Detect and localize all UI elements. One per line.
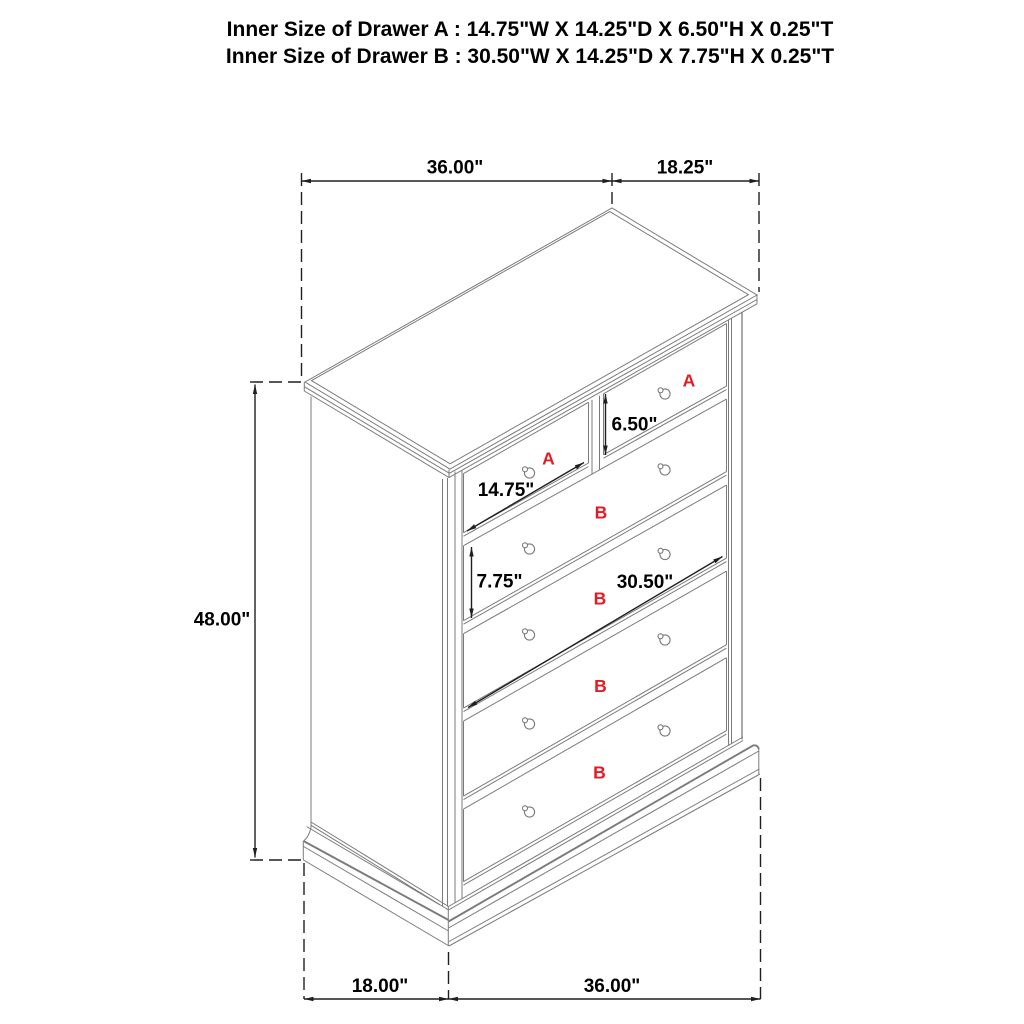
svg-text:B: B bbox=[594, 588, 607, 608]
svg-text:36.00": 36.00" bbox=[584, 976, 641, 997]
svg-text:18.25": 18.25" bbox=[657, 158, 714, 179]
svg-text:18.00": 18.00" bbox=[352, 976, 409, 997]
svg-text:14.75": 14.75" bbox=[478, 480, 535, 501]
svg-text:B: B bbox=[595, 502, 608, 522]
svg-text:B: B bbox=[593, 762, 606, 782]
svg-text:6.50": 6.50" bbox=[612, 414, 658, 435]
svg-text:48.00": 48.00" bbox=[194, 610, 251, 631]
svg-text:7.75": 7.75" bbox=[477, 572, 523, 593]
svg-text:A: A bbox=[683, 371, 696, 391]
svg-text:30.50": 30.50" bbox=[617, 572, 674, 593]
svg-text:36.00": 36.00" bbox=[427, 158, 484, 179]
svg-text:B: B bbox=[594, 676, 607, 696]
svg-text:A: A bbox=[542, 448, 555, 468]
